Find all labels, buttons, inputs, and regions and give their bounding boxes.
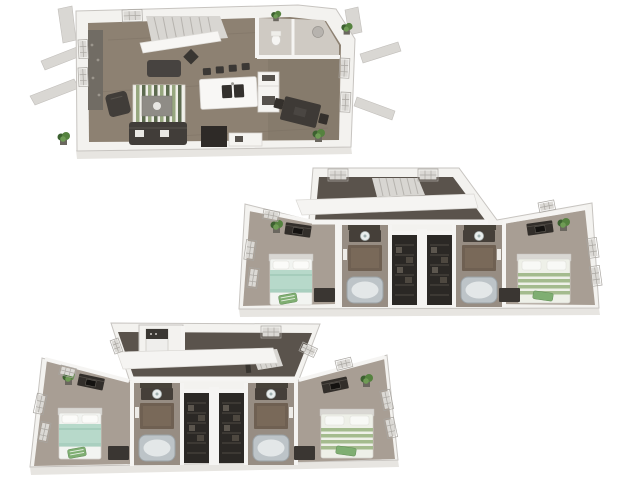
accent-wallpaper-wall <box>88 30 103 110</box>
staircase <box>372 178 425 197</box>
mint-bed <box>269 254 313 305</box>
loveseat <box>147 60 181 77</box>
bath-and-closet-block <box>342 225 502 307</box>
floorplan-sheet <box>0 0 640 480</box>
window-icon <box>328 169 348 181</box>
striped-bed <box>517 254 571 303</box>
desk <box>314 288 335 302</box>
floorplan-level-1 <box>28 0 398 170</box>
window-icon <box>418 169 438 181</box>
sink-basin <box>234 84 245 98</box>
mint-bed <box>58 408 102 459</box>
tray <box>153 102 161 110</box>
bath-and-closet-block <box>134 383 294 465</box>
front-wall-face <box>239 308 600 317</box>
floorplan-level-2 <box>222 162 612 330</box>
water-heater <box>313 27 324 38</box>
desk <box>499 288 520 302</box>
desk <box>294 446 315 460</box>
sofa-pillow <box>135 130 144 137</box>
striped-bed <box>320 409 374 458</box>
desk <box>108 446 129 460</box>
sideboard <box>229 133 262 146</box>
tv-console <box>201 126 227 147</box>
sofa-pillow <box>160 130 169 137</box>
potted-plant-icon <box>58 132 71 145</box>
floorplan-level-3 <box>15 318 425 480</box>
window-icon <box>261 326 281 338</box>
sink-basin <box>222 85 233 99</box>
